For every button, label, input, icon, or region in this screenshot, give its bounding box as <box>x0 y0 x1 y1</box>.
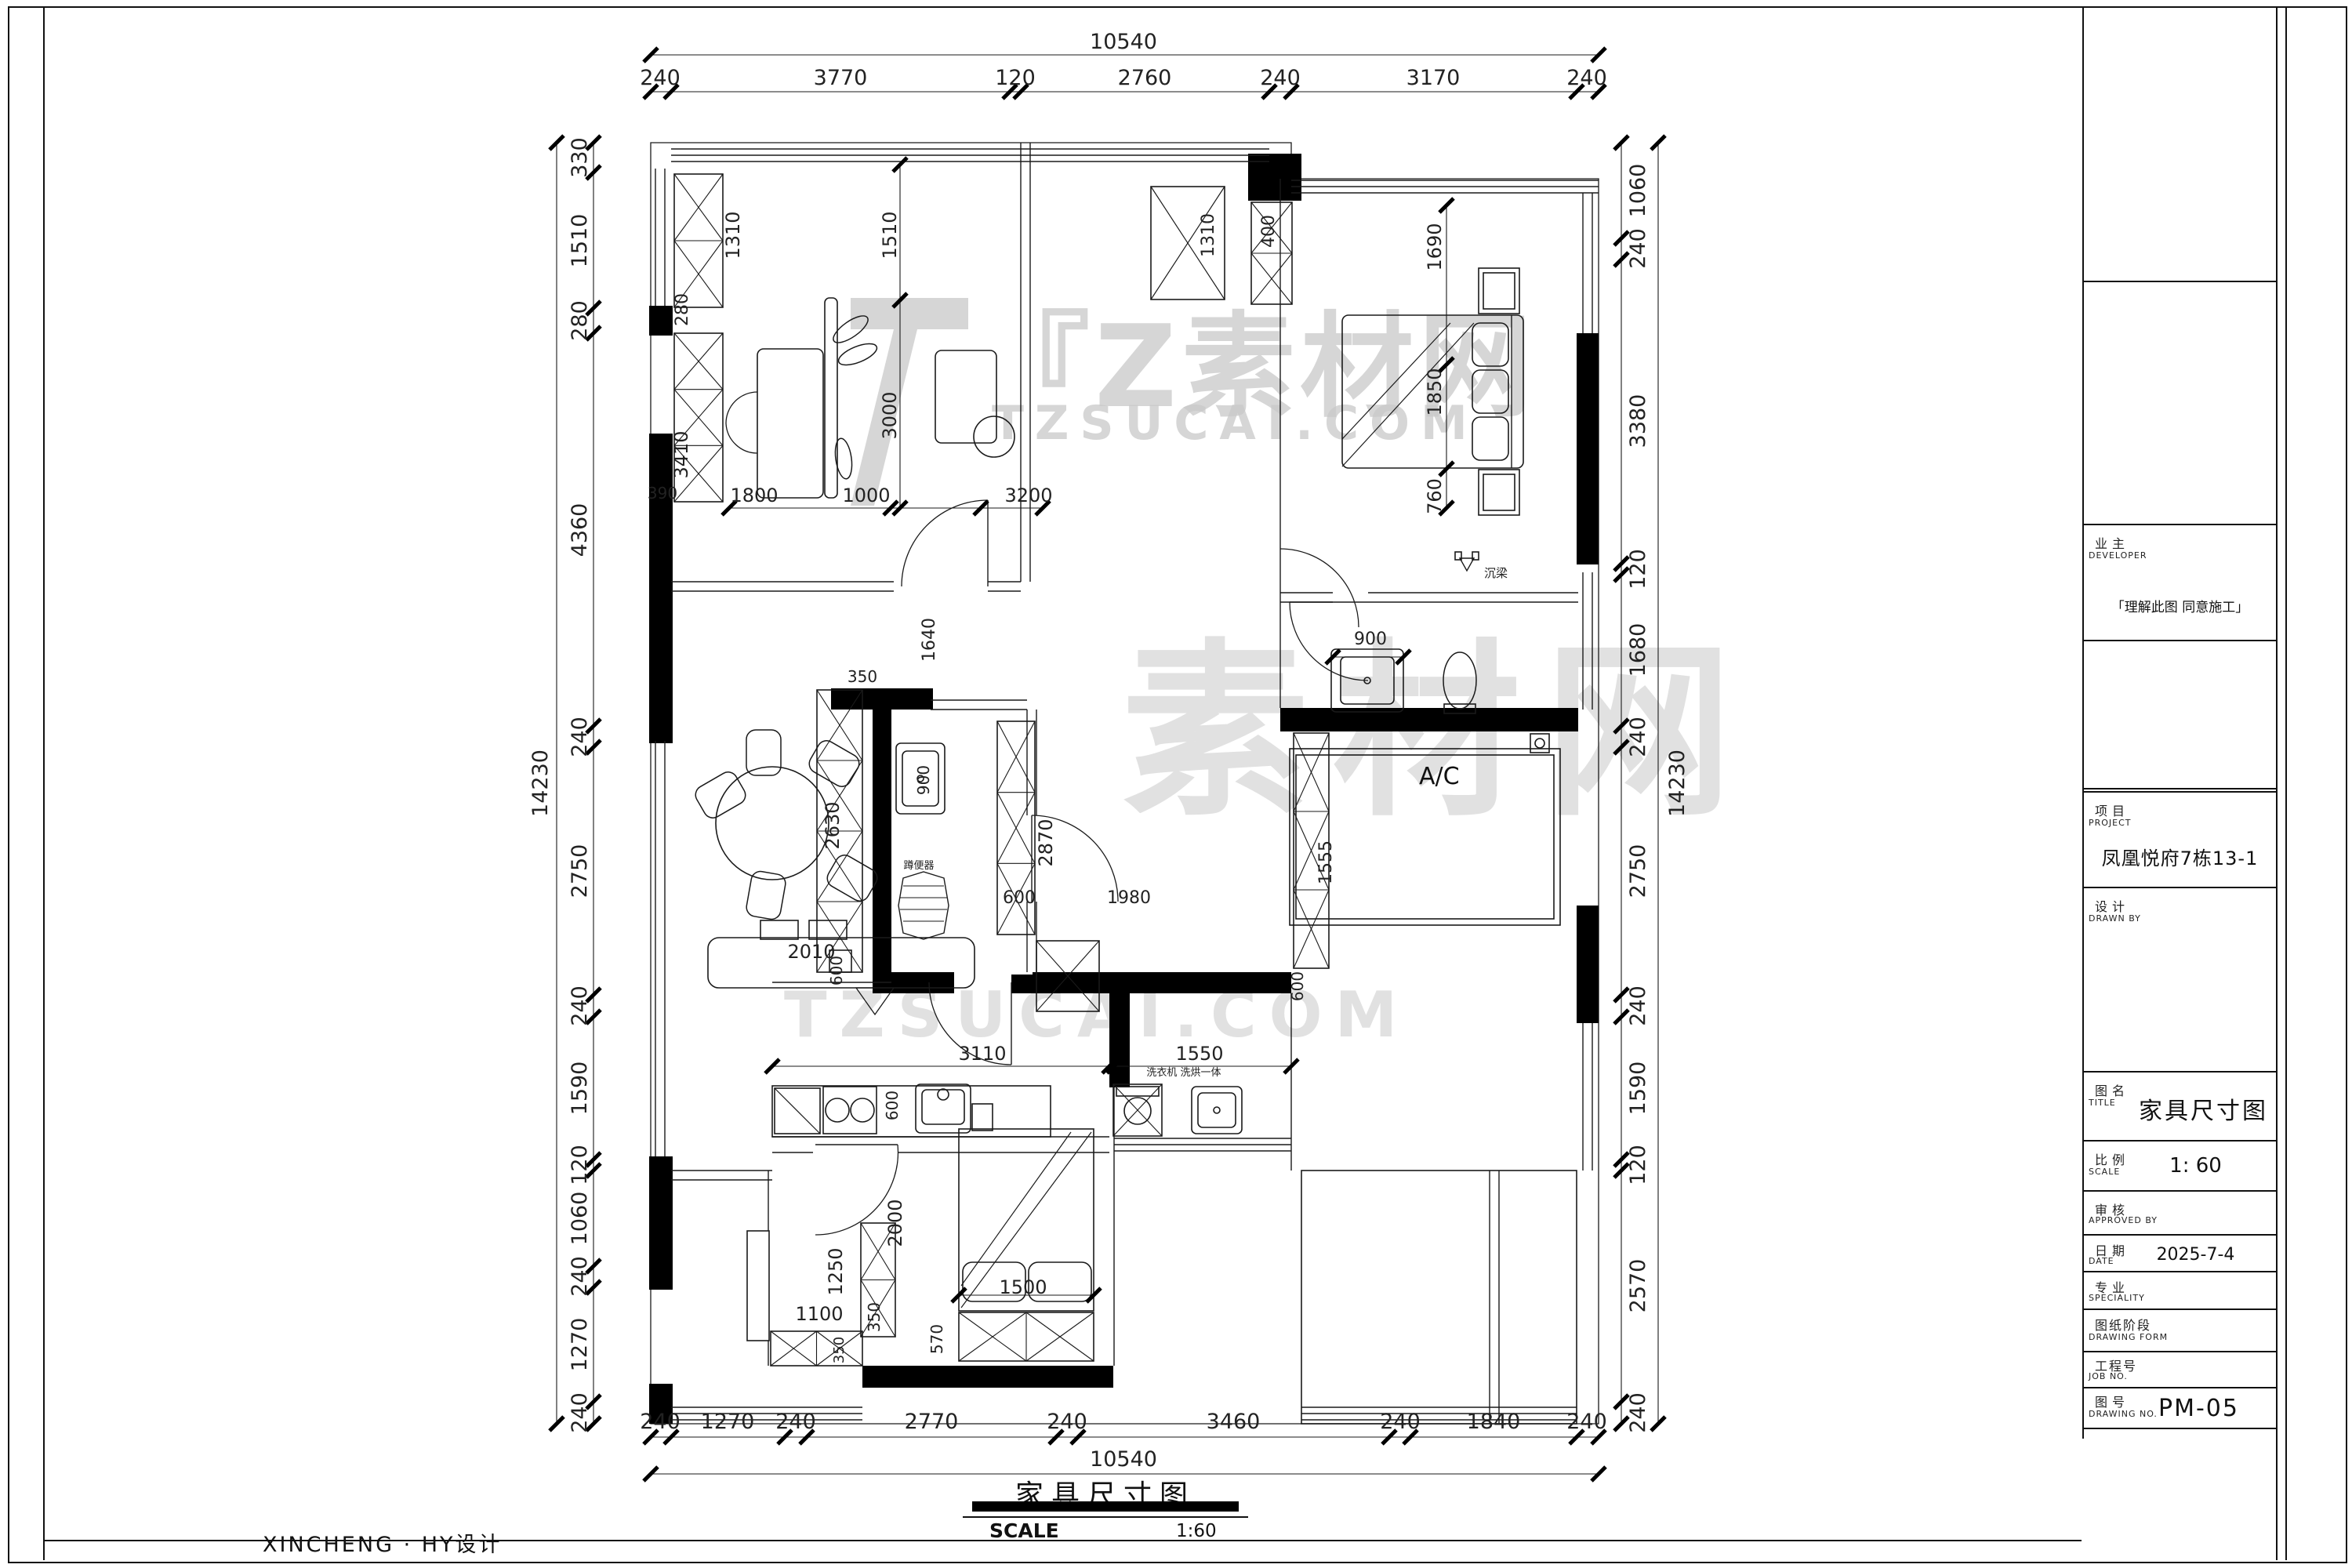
title-value: 家具尺寸图 <box>2107 1091 2299 1126</box>
title-block-speciality: 专业 SPECIALITY <box>2084 1272 2276 1310</box>
sheet-outer-border <box>8 6 2347 1563</box>
title-block-drawing-no: 图号 DRAWING NO. PM-05 <box>2084 1388 2276 1429</box>
title-block-empty-3 <box>2084 641 2276 793</box>
drawing-sheet: 『Z素材网 TZSUCAI.COM 素材网 TZSUCAI.COM A/C105… <box>0 0 2352 1568</box>
footer-title-bar <box>972 1501 1239 1512</box>
developer-note: 「理解此图 同意施工」 <box>2084 596 2276 615</box>
studio-logo: XINCHENG · HY设计 <box>263 1527 503 1558</box>
title-block-form: 图纸阶段 DRAWING FORM <box>2084 1310 2276 1352</box>
title-block-empty-1 <box>2084 6 2276 282</box>
title-block-empty-2 <box>2084 282 2276 525</box>
sheet-right-border <box>2276 6 2287 1560</box>
form-label-en: DRAWING FORM <box>2089 1332 2168 1342</box>
developer-label-cn: 业主 <box>2095 533 2129 552</box>
title-block-title: 图名 TITLE 家具尺寸图 <box>2084 1073 2276 1142</box>
title-block-date: 日期 DATE 2025-7-4 <box>2084 1236 2276 1272</box>
project-label-en: PROJECT <box>2089 818 2132 828</box>
speciality-label-en: SPECIALITY <box>2089 1293 2145 1303</box>
form-label-cn: 图纸阶段 <box>2095 1315 2151 1334</box>
title-block-developer: 业主 DEVELOPER 「理解此图 同意施工」 <box>2084 525 2276 641</box>
title-block-scale: 比例 SCALE 1: 60 <box>2084 1142 2276 1192</box>
title-block-approved: 审核 APPROVED BY <box>2084 1192 2276 1236</box>
sheet-inner-border <box>43 6 45 1560</box>
developer-label-en: DEVELOPER <box>2089 550 2147 561</box>
title-block: 业主 DEVELOPER 「理解此图 同意施工」 项目 PROJECT 凤凰悦府… <box>2082 6 2278 1439</box>
project-value: 凤凰悦府7栋13-1 <box>2084 843 2276 870</box>
title-block-design: 设计 DRAWN BY <box>2084 888 2276 1073</box>
footer-scale-label: SCALE <box>989 1519 1059 1542</box>
design-label-en: DRAWN BY <box>2089 913 2141 924</box>
title-block-project: 项目 PROJECT 凤凰悦府7栋13-1 <box>2084 793 2276 888</box>
title-block-job: 工程号 JOB NO. <box>2084 1352 2276 1388</box>
drawing-no-value: PM-05 <box>2103 1395 2295 1422</box>
project-label-cn: 项目 <box>2095 800 2129 819</box>
design-label-cn: 设计 <box>2095 896 2129 915</box>
date-value: 2025-7-4 <box>2100 1245 2292 1265</box>
approved-label-en: APPROVED BY <box>2089 1215 2158 1225</box>
scale-value: 1: 60 <box>2100 1154 2292 1178</box>
footer-scale-value: 1:60 <box>1176 1521 1217 1541</box>
job-label-en: JOB NO. <box>2089 1371 2128 1381</box>
footer-title-underline <box>963 1516 1248 1518</box>
